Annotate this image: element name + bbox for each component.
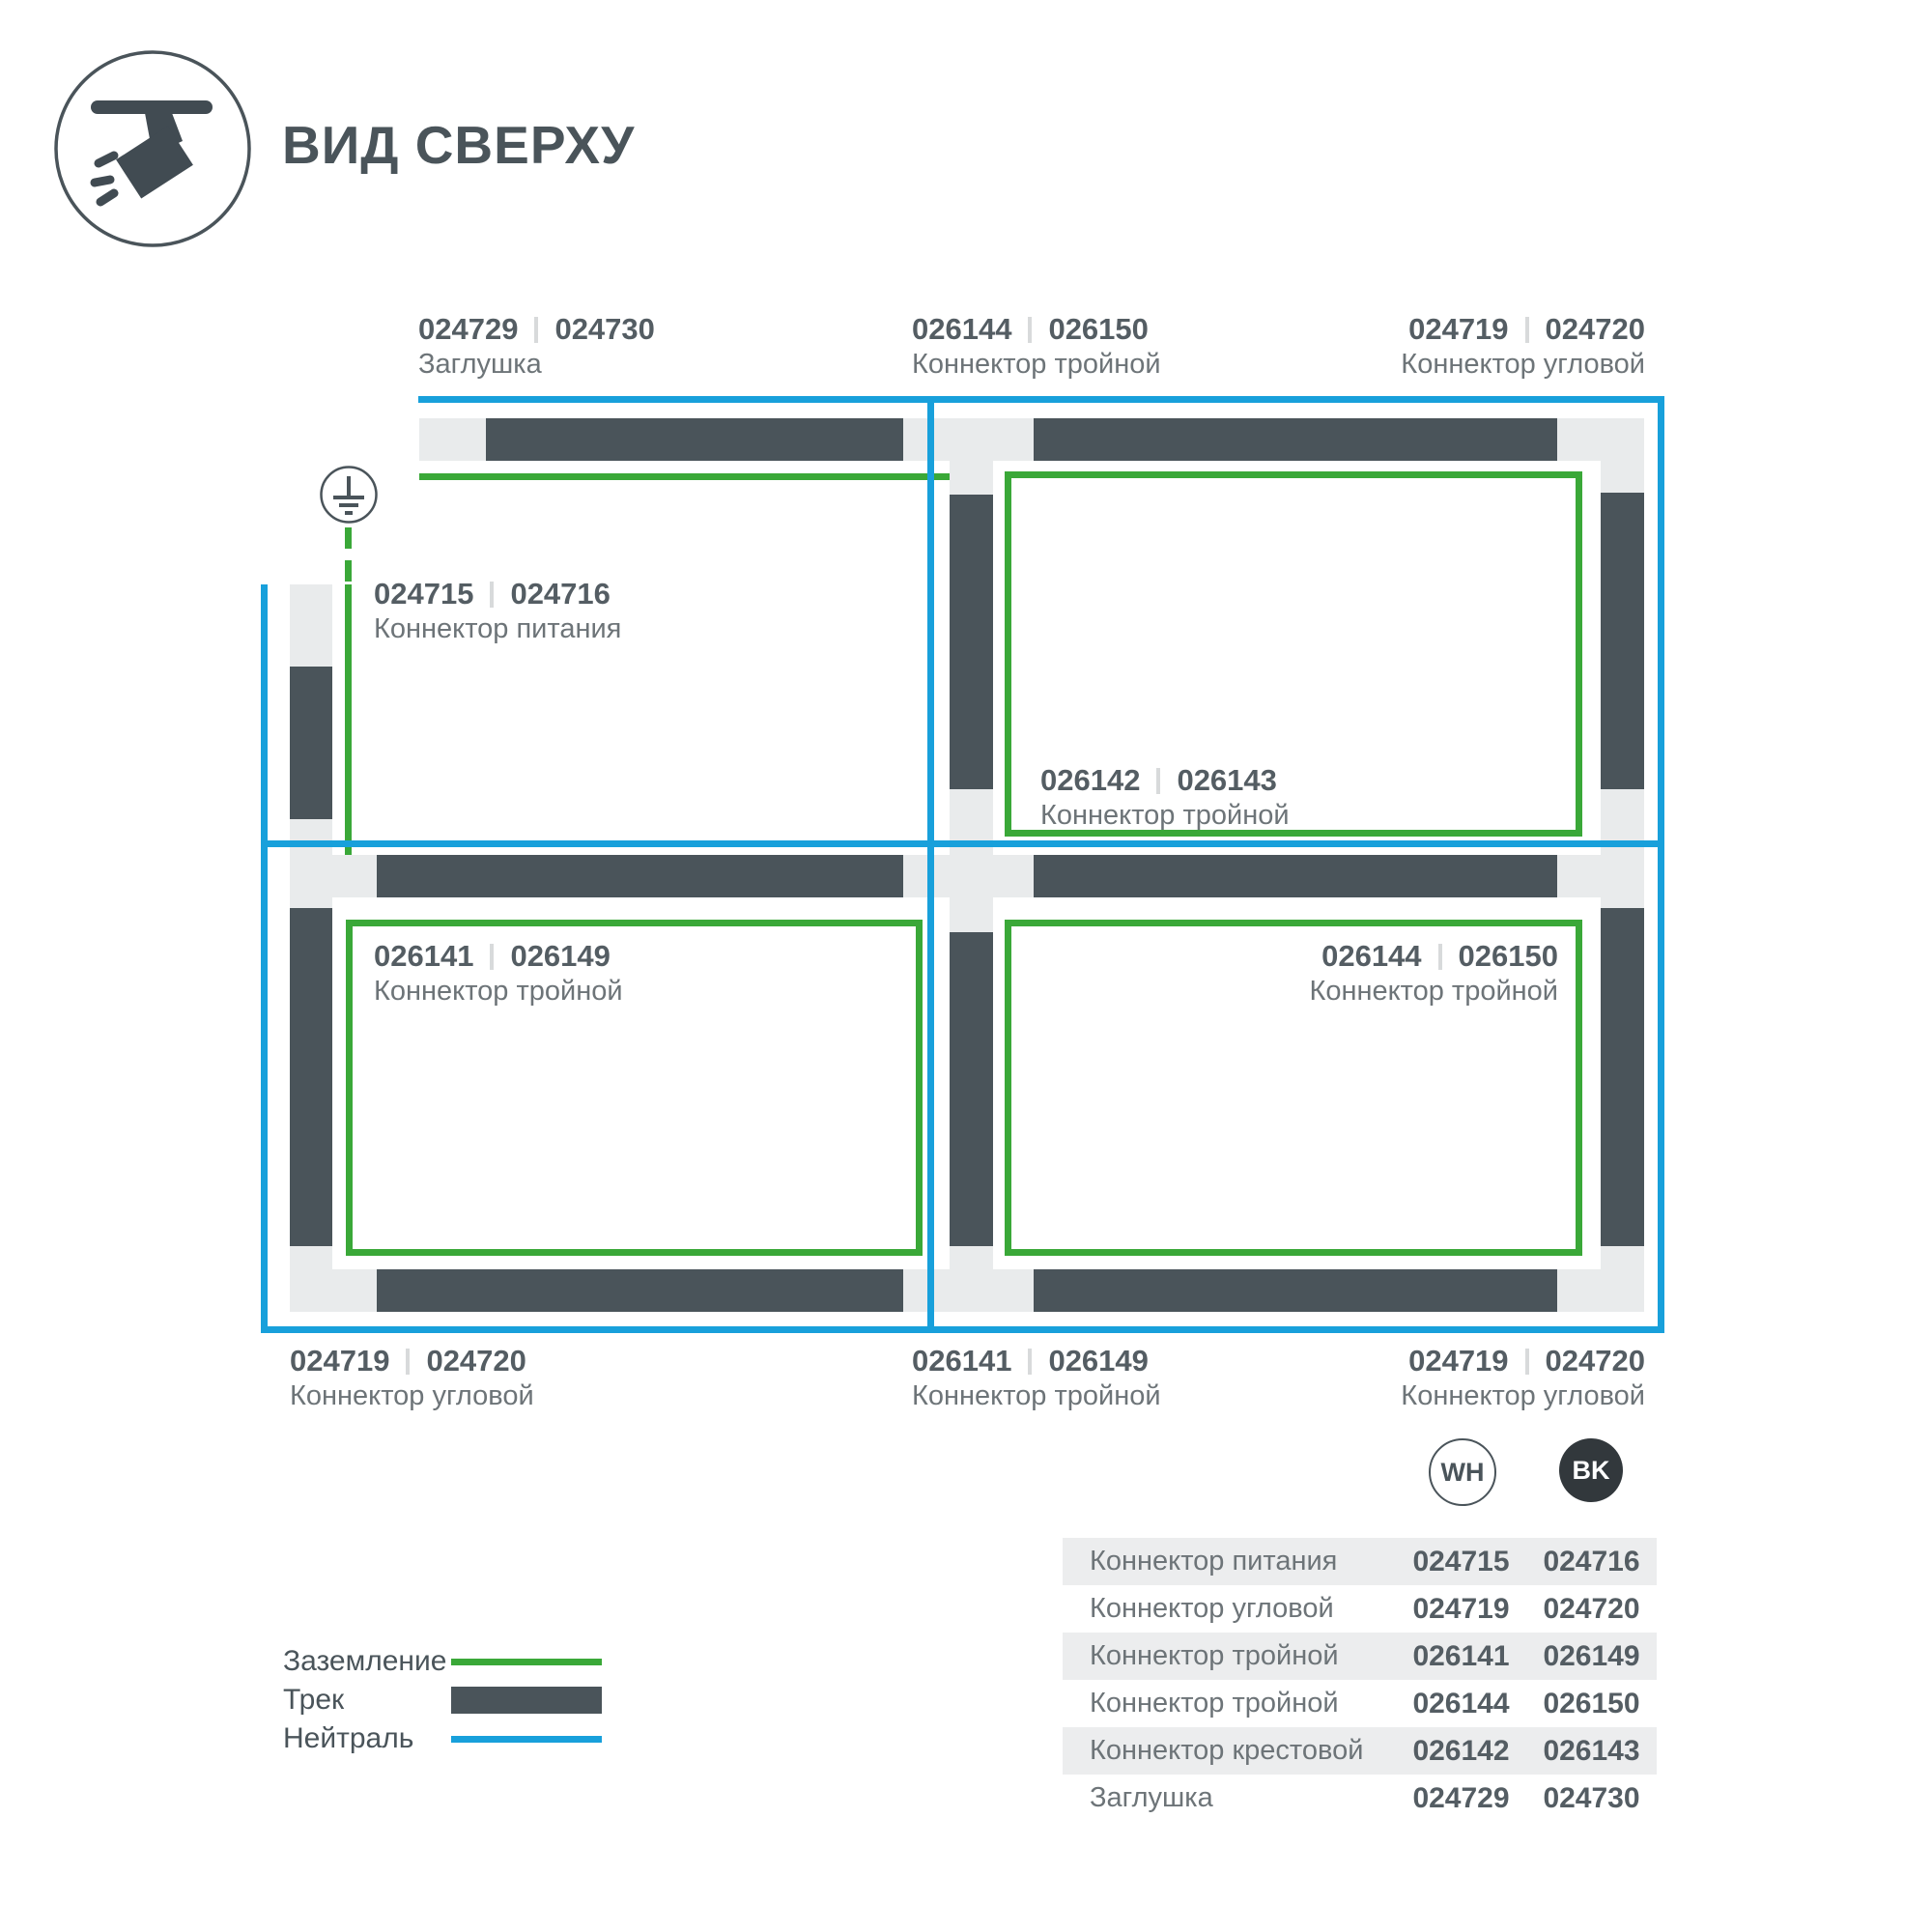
earth-ground-icon	[319, 465, 379, 525]
page-title: ВИД СВЕРХУ	[282, 114, 635, 176]
color-badge-black: BK	[1559, 1438, 1623, 1502]
table-row: Коннектор питания024715024716	[1063, 1538, 1657, 1585]
legend-row-neutral: Нейтраль	[283, 1719, 602, 1758]
separator	[1438, 944, 1442, 970]
ground-feed-dash	[345, 560, 352, 582]
separator	[1525, 317, 1529, 343]
separator	[1028, 317, 1032, 343]
neutral-line-swatch	[451, 1736, 602, 1743]
table-row: Коннектор угловой024719024720	[1063, 1585, 1657, 1633]
part-label-corner-bottom-right: 024719024720 Коннектор угловой	[1401, 1345, 1645, 1412]
neutral-line-top	[418, 396, 1664, 403]
legend: Заземление Трек Нейтраль	[283, 1642, 602, 1758]
legend-row-track: Трек	[283, 1681, 602, 1719]
page: ВИД СВЕРХУ	[0, 0, 1932, 1932]
separator	[406, 1349, 410, 1375]
ground-line-top	[419, 473, 950, 480]
part-label-tee-bottom: 026141026149 Коннектор тройной	[912, 1345, 1161, 1412]
separator	[1028, 1349, 1032, 1375]
part-label-power-feed: 024715024716 Коннектор питания	[374, 578, 621, 645]
part-label-corner-top-right: 024719024720 Коннектор угловой	[1401, 313, 1645, 381]
part-label-tee-left: 026141026149 Коннектор тройной	[374, 940, 623, 1008]
track-bar-swatch	[451, 1687, 602, 1714]
ground-feed-dash	[345, 527, 352, 549]
separator	[1525, 1349, 1529, 1375]
track-spotlight-icon	[50, 46, 255, 251]
neutral-line-middle	[261, 840, 1664, 847]
separator	[1156, 768, 1160, 794]
ground-line-left	[345, 584, 352, 855]
legend-row-ground: Заземление	[283, 1642, 602, 1681]
table-row: Заглушка024729024730	[1063, 1775, 1657, 1822]
table-row: Коннектор тройной026141026149	[1063, 1633, 1657, 1680]
table-row: Коннектор крестовой026142026143	[1063, 1727, 1657, 1775]
table-row: Коннектор тройной026144026150	[1063, 1680, 1657, 1727]
neutral-line-center	[927, 396, 934, 1333]
part-label-endcap-top: 024729024730 Заглушка	[418, 313, 655, 381]
color-badge-white: WH	[1429, 1438, 1496, 1506]
neutral-line-right	[1658, 396, 1664, 1333]
neutral-line-bottom	[261, 1326, 1664, 1333]
separator	[490, 944, 494, 970]
parts-table: Коннектор питания024715024716 Коннектор …	[1063, 1538, 1657, 1822]
ground-line-swatch	[451, 1659, 602, 1665]
part-label-tee-right: 026144026150 Коннектор тройной	[1309, 940, 1558, 1008]
part-label-corner-bottom-left: 024719024720 Коннектор угловой	[290, 1345, 534, 1412]
part-label-cross-center: 026142026143 Коннектор тройной	[1040, 764, 1290, 832]
neutral-line-left	[261, 584, 268, 1333]
part-label-tee-top: 026144026150 Коннектор тройной	[912, 313, 1161, 381]
separator	[490, 582, 494, 608]
separator	[534, 317, 538, 343]
